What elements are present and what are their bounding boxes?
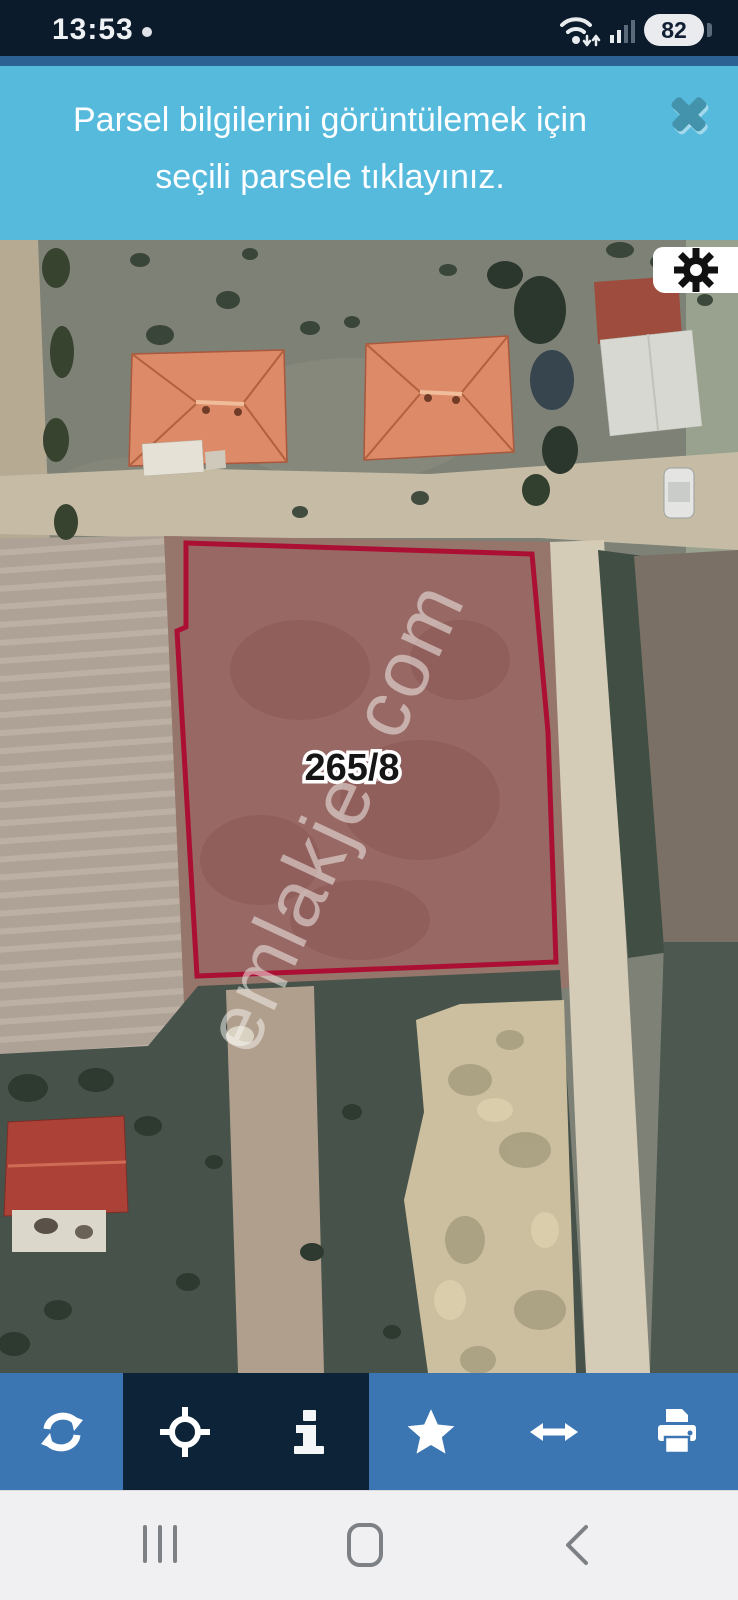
phone-screen: 13:53 82	[0, 0, 738, 1600]
status-bar: 13:53 82	[0, 0, 738, 56]
house-top-right	[364, 336, 514, 460]
map-toolbar	[0, 1373, 738, 1490]
clock: 13:53	[52, 13, 134, 47]
refresh-button[interactable]	[0, 1373, 123, 1490]
battery-percent: 82	[661, 17, 687, 44]
android-nav-bar	[0, 1490, 738, 1600]
info-button[interactable]	[246, 1373, 369, 1490]
house-top-left	[129, 350, 287, 476]
star-icon	[402, 1403, 460, 1461]
wifi-icon	[558, 12, 602, 48]
gear-icon	[674, 248, 718, 292]
car	[664, 468, 694, 518]
parcel-label: 265/8	[304, 747, 399, 789]
back-icon	[562, 1523, 590, 1567]
map-settings-button[interactable]	[653, 247, 738, 293]
battery-indicator: 82	[644, 14, 704, 46]
info-banner: Parsel bilgilerini görüntülemek için seç…	[0, 66, 738, 240]
back-button[interactable]	[562, 1523, 590, 1572]
map-view[interactable]: emlakjet.com 265/8	[0, 240, 738, 1373]
favorite-button[interactable]	[369, 1373, 492, 1490]
banner-message: Parsel bilgilerini görüntülemek için seç…	[20, 92, 640, 206]
refresh-icon	[34, 1404, 90, 1460]
recents-button[interactable]	[143, 1525, 177, 1563]
banner-line-2: seçili parsele tıklayınız.	[20, 149, 640, 206]
close-icon	[666, 90, 716, 140]
notification-dot-icon	[142, 27, 152, 37]
horizontal-arrow-icon	[526, 1404, 582, 1460]
home-button[interactable]	[347, 1523, 383, 1567]
crosshair-icon	[157, 1404, 213, 1460]
print-button[interactable]	[615, 1373, 738, 1490]
status-icons: 82	[558, 10, 712, 50]
recents-icon	[143, 1525, 147, 1563]
measure-width-button[interactable]	[492, 1373, 615, 1490]
status-divider	[0, 56, 738, 66]
signal-strength-icon	[610, 15, 636, 45]
banner-line-1: Parsel bilgilerini görüntülemek için	[20, 92, 640, 149]
battery-tip	[707, 23, 712, 37]
printer-icon	[649, 1404, 705, 1460]
close-button[interactable]	[666, 90, 716, 140]
satellite-map[interactable]: emlakjet.com 265/8	[0, 240, 738, 1373]
info-icon	[280, 1404, 336, 1460]
locate-button[interactable]	[123, 1373, 246, 1490]
